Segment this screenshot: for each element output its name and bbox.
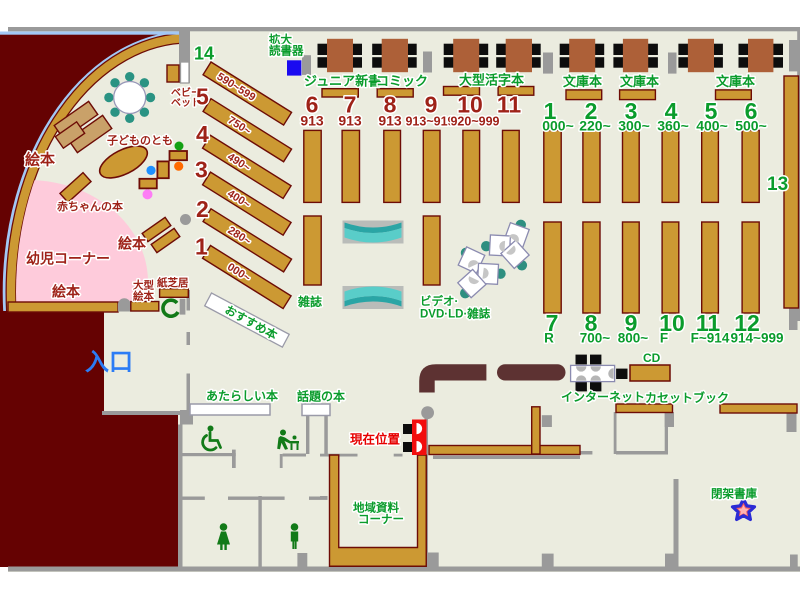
svg-text:14: 14	[194, 44, 214, 64]
svg-text:カセットブック: カセットブック	[645, 390, 729, 405]
svg-text:文庫本: 文庫本	[620, 74, 659, 89]
svg-text:雑誌: 雑誌	[297, 294, 322, 309]
svg-text:CD: CD	[643, 351, 661, 365]
svg-text:13: 13	[767, 174, 788, 195]
svg-text:コーナー: コーナー	[358, 513, 404, 526]
svg-text:読書器: 読書器	[269, 44, 304, 58]
svg-text:ビデオ·: ビデオ·	[420, 294, 458, 308]
svg-text:大型活字本: 大型活字本	[459, 73, 524, 88]
svg-text:220~: 220~	[579, 118, 611, 134]
svg-text:913: 913	[378, 113, 402, 129]
svg-text:913: 913	[338, 113, 362, 129]
svg-text:文庫本: 文庫本	[716, 74, 755, 89]
svg-text:4: 4	[196, 121, 209, 147]
svg-text:500~: 500~	[735, 118, 767, 134]
svg-text:入口: 入口	[85, 349, 133, 376]
svg-text:360~: 360~	[657, 118, 689, 134]
svg-text:DVD·LD·雑誌: DVD·LD·雑誌	[420, 307, 491, 321]
svg-text:700~: 700~	[580, 331, 611, 346]
svg-text:絵本: 絵本	[52, 284, 81, 300]
svg-text:300~: 300~	[618, 118, 650, 134]
svg-text:920~999: 920~999	[450, 115, 499, 129]
svg-text:400~: 400~	[696, 118, 728, 134]
svg-text:2: 2	[196, 196, 209, 222]
svg-text:913~919: 913~919	[405, 115, 454, 129]
svg-text:F~914: F~914	[691, 331, 730, 346]
svg-text:絵本: 絵本	[118, 236, 147, 252]
svg-text:11: 11	[497, 92, 522, 118]
svg-text:5: 5	[196, 84, 209, 110]
svg-text:地域資料: 地域資料	[353, 501, 399, 515]
svg-text:赤ちゃんの本: 赤ちゃんの本	[57, 199, 123, 213]
svg-text:紙芝居: 紙芝居	[157, 276, 189, 289]
svg-text:現在位置: 現在位置	[350, 432, 401, 447]
svg-text:R: R	[544, 331, 554, 346]
svg-text:3: 3	[195, 157, 208, 183]
svg-text:閉架書庫: 閉架書庫	[711, 487, 757, 501]
svg-text:F: F	[660, 331, 668, 346]
svg-text:1: 1	[195, 234, 208, 260]
svg-text:拡大: 拡大	[269, 33, 292, 47]
svg-text:子どものとも: 子どものとも	[107, 134, 173, 147]
svg-text:800~: 800~	[618, 331, 649, 346]
svg-text:ジュニア新書: ジュニア新書	[304, 74, 381, 89]
svg-text:インターネット: インターネット	[561, 390, 645, 404]
svg-text:913: 913	[300, 113, 324, 129]
svg-text:あたらしい本: あたらしい本	[206, 388, 278, 403]
svg-text:幼児コーナー: 幼児コーナー	[26, 251, 110, 267]
svg-text:絵本: 絵本	[133, 290, 154, 303]
svg-text:コミック: コミック	[376, 74, 428, 89]
svg-text:914~999: 914~999	[731, 331, 784, 346]
svg-text:話題の本: 話題の本	[297, 389, 345, 404]
svg-text:000~: 000~	[542, 118, 574, 134]
svg-text:絵本: 絵本	[25, 151, 55, 169]
svg-text:文庫本: 文庫本	[563, 74, 602, 89]
